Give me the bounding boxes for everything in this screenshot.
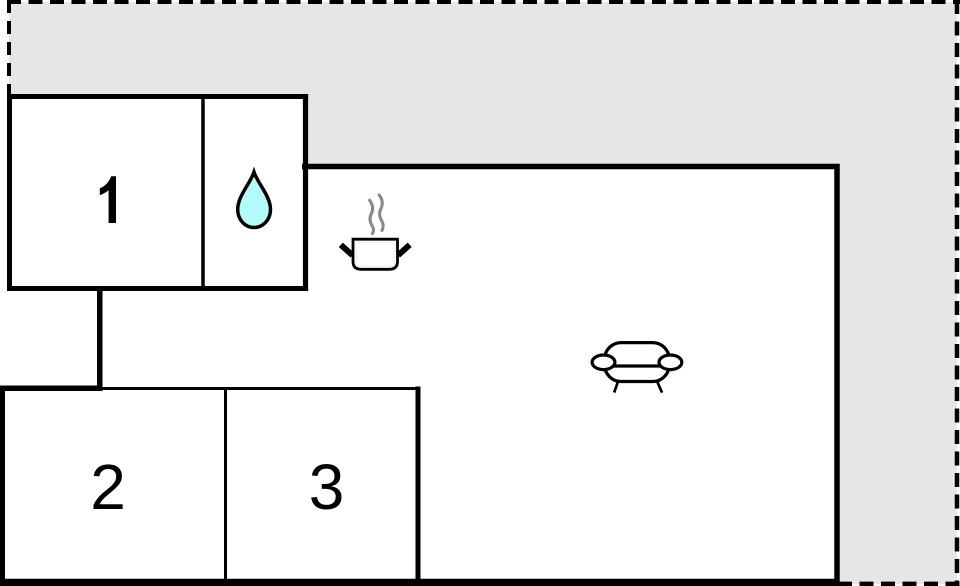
svg-text:2: 2 — [90, 451, 126, 523]
svg-text:3: 3 — [309, 451, 345, 523]
